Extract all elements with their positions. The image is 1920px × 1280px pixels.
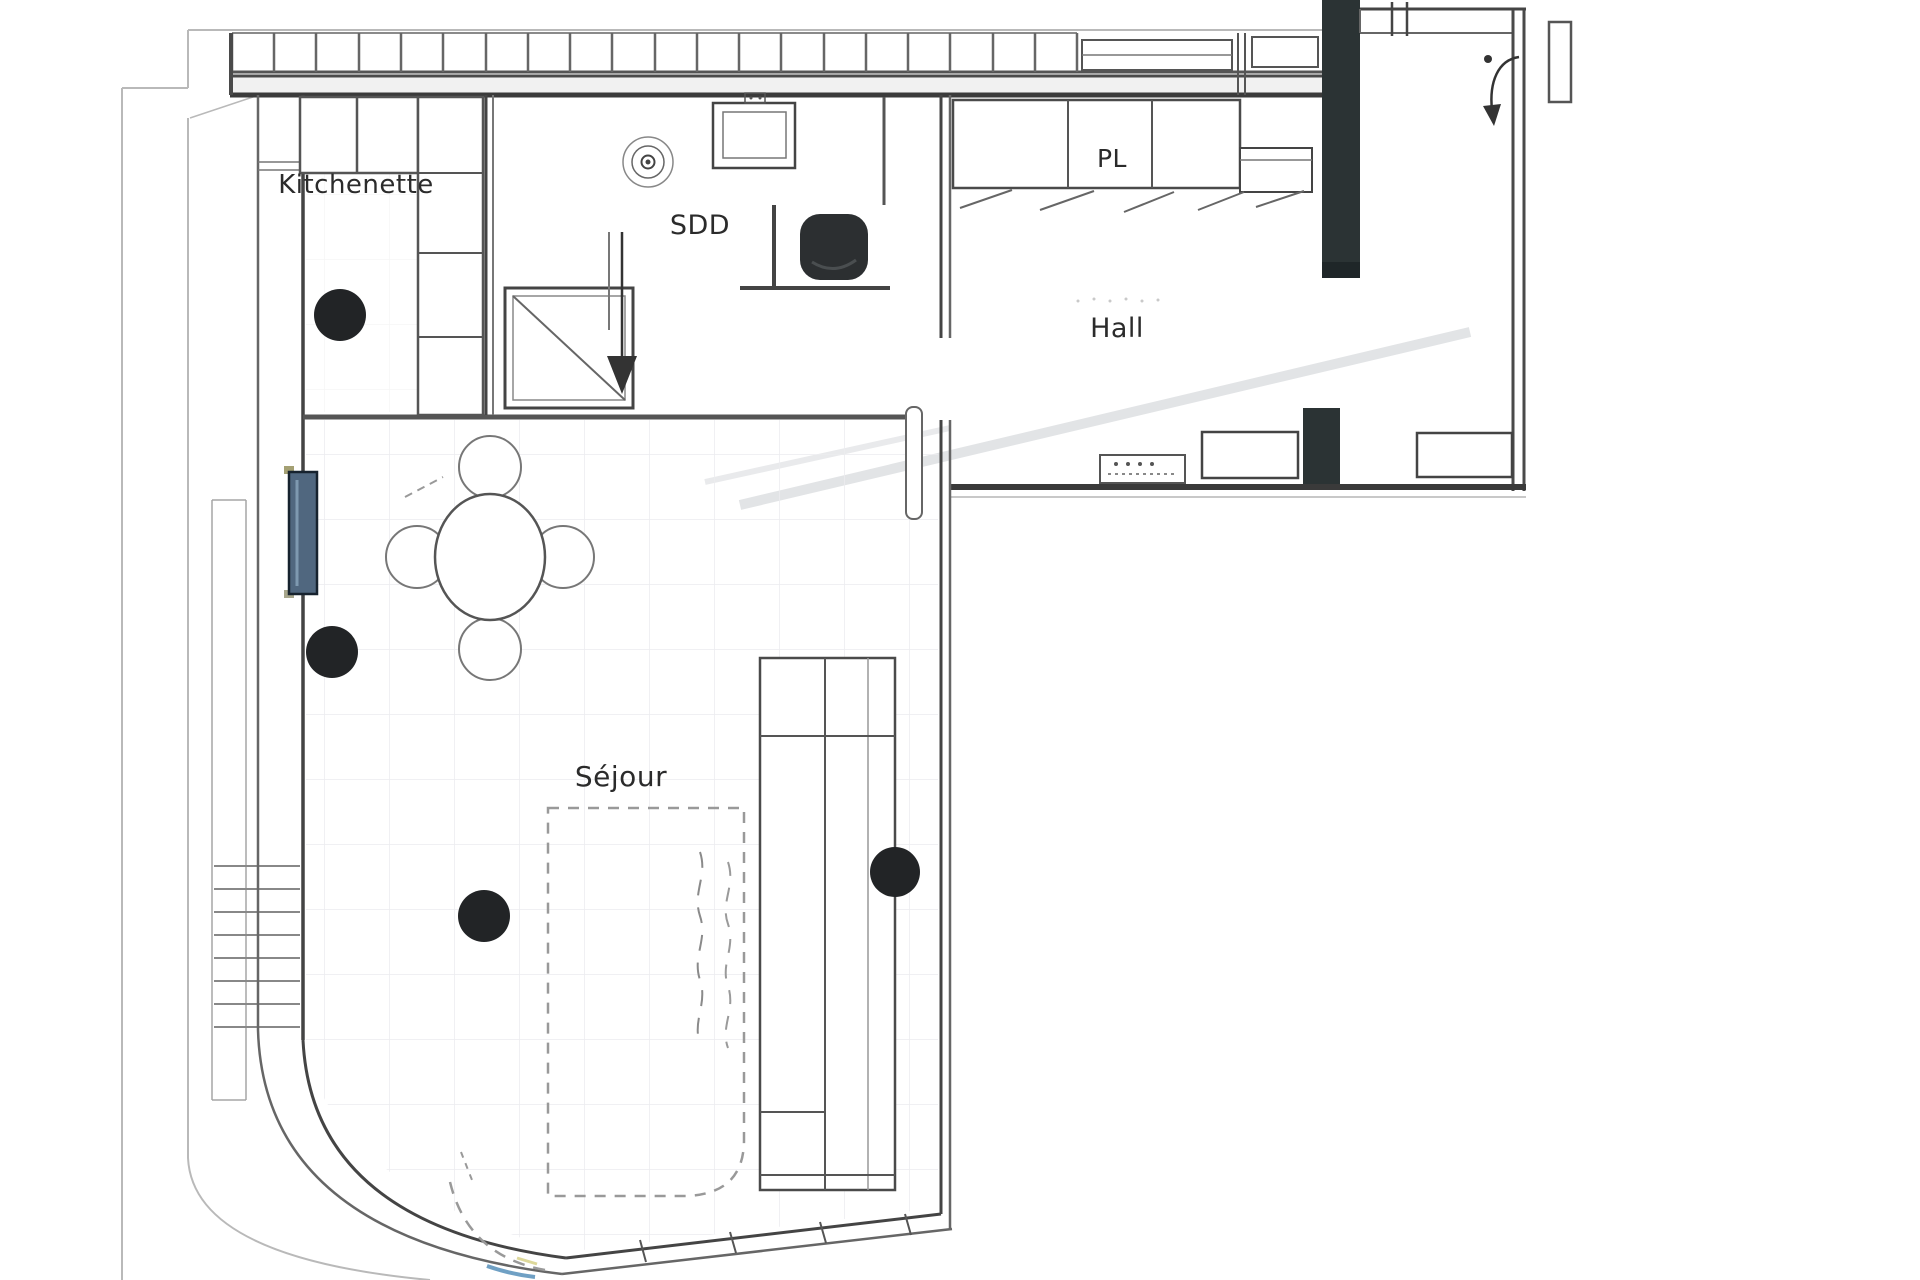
scan-smudge-dots [1077,298,1160,303]
room-label-sdd: SDD [670,210,730,241]
entry-shelf [1240,148,1312,192]
hall-vent-grille [1100,455,1185,483]
north-window-band [230,33,1322,95]
hall-cabinet-left [1202,432,1298,478]
pl-closet-row [953,100,1312,212]
right-side-window [1549,22,1571,102]
entry-door-frame [1392,2,1407,36]
room-label-sejour: Séjour [575,760,667,793]
room-label-pl: PL [1097,144,1127,173]
door-jamb [906,407,922,519]
window-mullions [232,33,1077,72]
hall-cabinet-right [1417,433,1512,477]
sliding-door-marks [960,190,1304,212]
room-label-hall: Hall [1090,313,1144,344]
left-terrace-edge [212,500,246,1100]
ceiling-light-dot [870,847,920,897]
room-label-kitchenette: Kitchenette [278,170,434,200]
round-table [435,494,545,620]
chair-north [459,436,521,498]
chair-south [459,618,521,680]
toilet [800,214,868,280]
spot-symbol [623,137,673,187]
entry-door-arrow [1483,104,1501,126]
ceiling-light-dot [314,289,366,341]
pillar-top [1322,0,1360,278]
sofa-unit [760,658,895,1190]
radiator-blue-bar [289,472,317,594]
floor-plan-svg: Kitchenette SDD PL Hall Séjour [0,0,1920,1280]
hall-south-wall [950,432,1526,497]
sdd-fixtures [505,93,890,408]
entry-door-swing-arc [1491,57,1519,110]
shower [505,288,633,408]
floor-plan-image: Kitchenette SDD PL Hall Séjour [0,0,1920,1280]
kitchen-tall-unit [418,97,483,415]
pillar-hall [1303,408,1340,490]
ceiling-light-dot [458,890,510,942]
pillar-top-cap [1322,262,1360,278]
entry-zone [1360,2,1571,491]
ceiling-light-dot [306,626,358,678]
left-wall-radiator [284,466,317,598]
